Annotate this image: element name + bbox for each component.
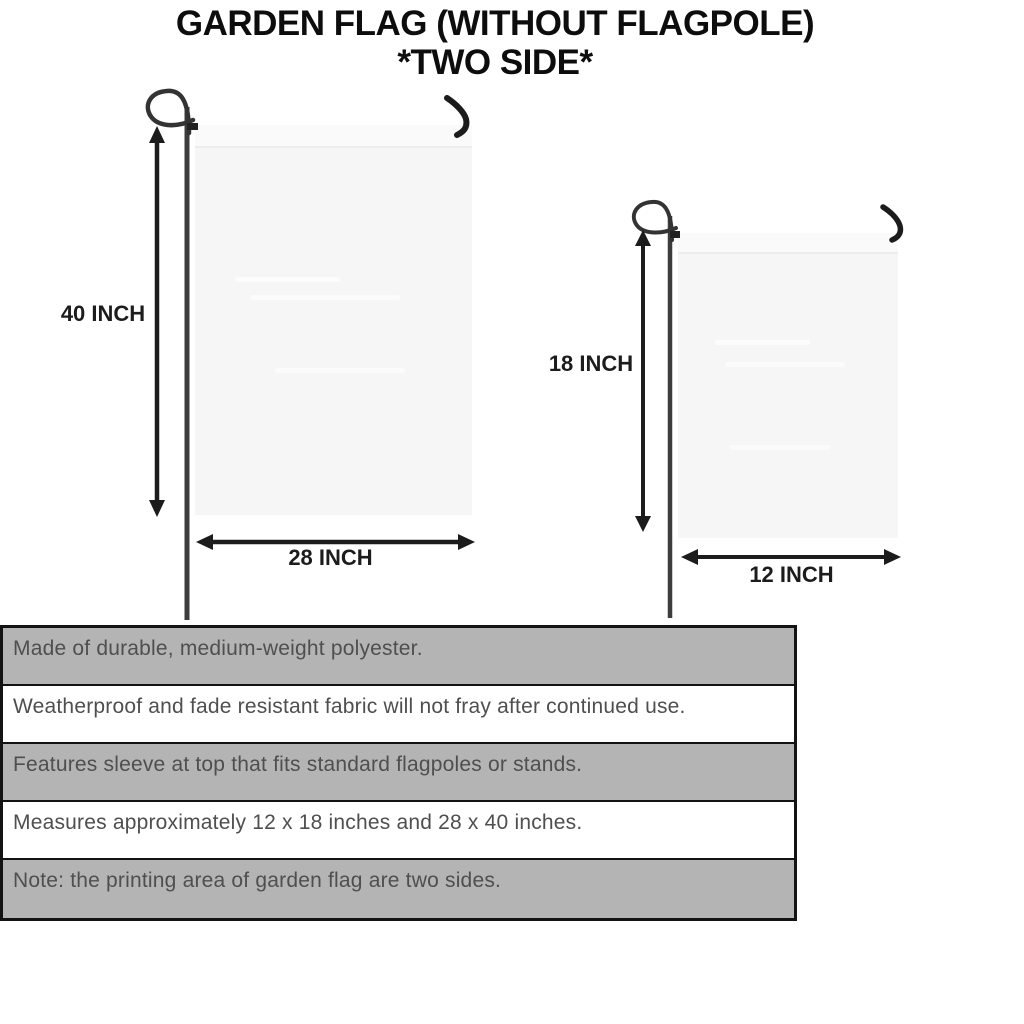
pole-clip xyxy=(187,123,198,130)
flag-fabric xyxy=(678,233,898,538)
spec-table: Made of durable, medium-weight polyester… xyxy=(0,625,797,921)
spec-row-measures: Measures approximately 12 x 18 inches an… xyxy=(3,802,794,860)
height-arrow xyxy=(635,230,651,532)
height-dimension-label: 18 INCH xyxy=(536,351,646,377)
height-dimension-label: 40 INCH xyxy=(48,301,158,327)
width-dimension-label: 28 INCH xyxy=(258,545,403,571)
flag-diagram-large: 40 INCH 28 INCH xyxy=(40,85,500,633)
spec-row-sleeve: Features sleeve at top that fits standar… xyxy=(3,744,794,802)
spec-text: Note: the printing area of garden flag a… xyxy=(13,869,501,892)
flag-fabric xyxy=(195,125,472,515)
wrinkle xyxy=(730,445,830,450)
spec-text: Features sleeve at top that fits standar… xyxy=(13,753,582,776)
width-dimension-label: 12 INCH xyxy=(719,562,864,588)
wrinkle xyxy=(275,368,405,373)
spec-text: Made of durable, medium-weight polyester… xyxy=(13,637,423,660)
spec-text: Weatherproof and fade resistant fabric w… xyxy=(13,695,686,718)
wrinkle xyxy=(250,295,400,300)
spec-text: Measures approximately 12 x 18 inches an… xyxy=(13,811,582,834)
wrinkle xyxy=(725,362,845,367)
title-line-2: *TWO SIDE* xyxy=(0,44,990,81)
flag-sleeve xyxy=(195,125,472,147)
title-line-1: GARDEN FLAG (WITHOUT FLAGPOLE) xyxy=(0,4,990,44)
spec-row-material: Made of durable, medium-weight polyester… xyxy=(3,628,794,686)
garden-flag-infographic: GARDEN FLAG (WITHOUT FLAGPOLE) *TWO SIDE… xyxy=(0,0,1024,1024)
wrinkle xyxy=(235,277,340,282)
spec-row-weatherproof: Weatherproof and fade resistant fabric w… xyxy=(3,686,794,744)
wrinkle xyxy=(715,340,810,345)
page-title: GARDEN FLAG (WITHOUT FLAGPOLE) *TWO SIDE… xyxy=(0,4,990,81)
pole-clip xyxy=(670,231,680,238)
flag-sleeve xyxy=(678,233,898,253)
flag-diagram-small: 18 INCH 12 INCH xyxy=(530,190,930,632)
spec-row-note: Note: the printing area of garden flag a… xyxy=(3,860,794,918)
